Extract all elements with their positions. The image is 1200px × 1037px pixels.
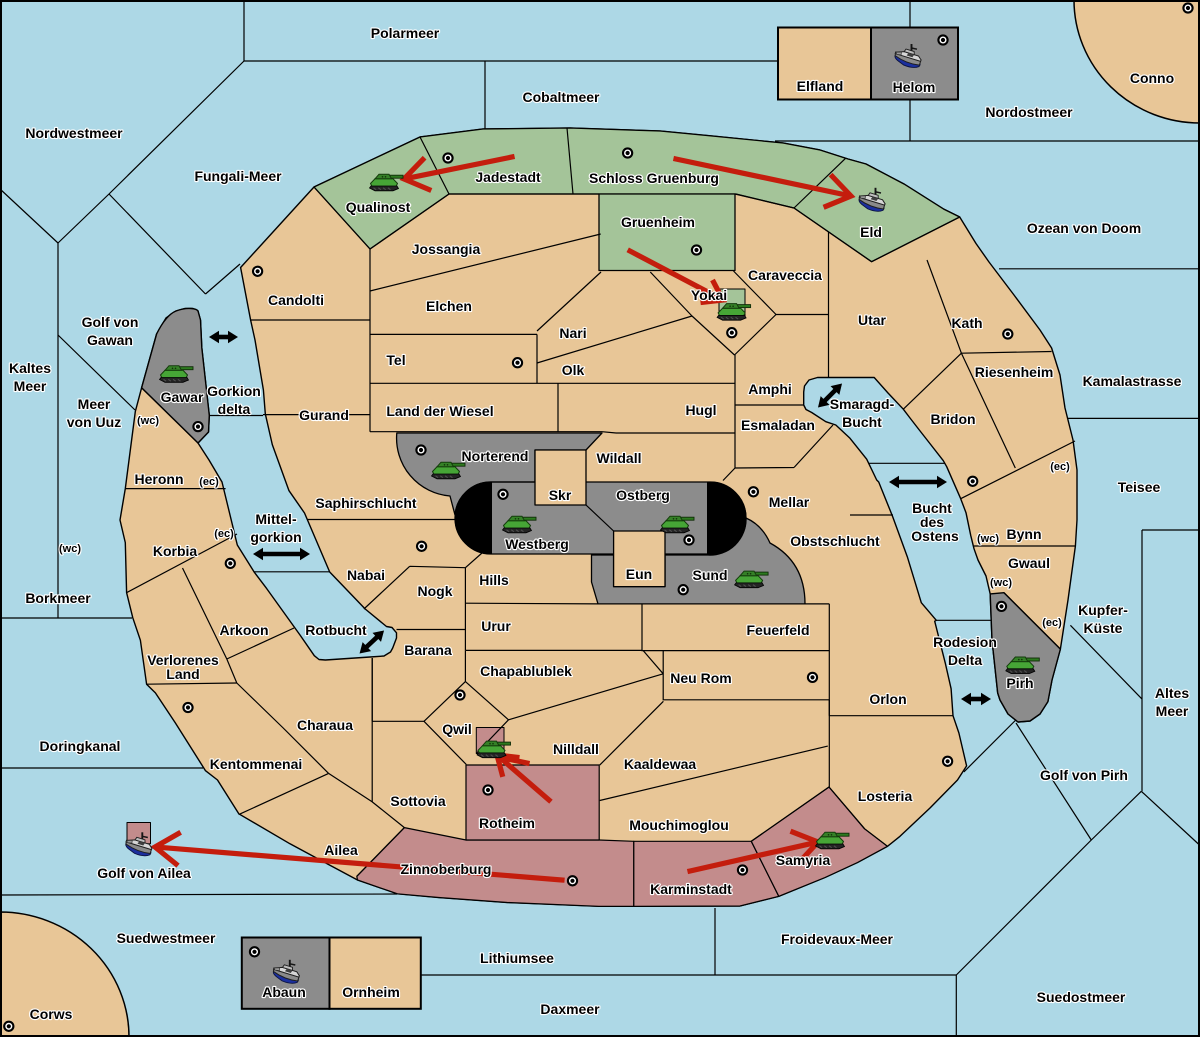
- svg-text:Neu Rom: Neu Rom: [670, 670, 731, 686]
- svg-text:Delta: Delta: [948, 652, 982, 668]
- svg-text:(wc): (wc): [137, 415, 159, 427]
- svg-text:(ec): (ec): [1050, 461, 1070, 473]
- svg-text:Land: Land: [166, 666, 199, 682]
- svg-text:Meer: Meer: [78, 396, 111, 412]
- svg-text:Mellar: Mellar: [769, 494, 810, 510]
- svg-text:Cobaltmeer: Cobaltmeer: [522, 89, 600, 105]
- svg-text:Arkoon: Arkoon: [220, 622, 269, 638]
- svg-text:Abaun: Abaun: [262, 984, 306, 1000]
- svg-text:Kaltes: Kaltes: [9, 360, 51, 376]
- svg-text:Wildall: Wildall: [597, 450, 642, 466]
- svg-text:Mittel-: Mittel-: [255, 511, 297, 527]
- svg-text:Kentommenai: Kentommenai: [210, 756, 303, 772]
- svg-text:Suedostmeer: Suedostmeer: [1037, 989, 1126, 1005]
- svg-text:Elfland: Elfland: [797, 78, 844, 94]
- svg-text:(ec): (ec): [1042, 617, 1062, 629]
- svg-text:Nordostmeer: Nordostmeer: [985, 104, 1073, 120]
- svg-text:Korbia: Korbia: [153, 543, 198, 559]
- svg-text:Golf von: Golf von: [82, 314, 139, 330]
- svg-text:Meer: Meer: [14, 378, 47, 394]
- svg-text:Sund: Sund: [693, 567, 728, 583]
- svg-text:Corws: Corws: [30, 1006, 73, 1022]
- svg-text:Tel: Tel: [386, 352, 405, 368]
- svg-text:Golf von Ailea: Golf von Ailea: [97, 865, 191, 881]
- svg-text:Orlon: Orlon: [869, 691, 906, 707]
- svg-text:Nilldall: Nilldall: [553, 741, 599, 757]
- svg-text:Bucht: Bucht: [842, 414, 882, 430]
- svg-text:Elchen: Elchen: [426, 298, 472, 314]
- svg-text:Meer: Meer: [1156, 703, 1189, 719]
- svg-text:Jadestadt: Jadestadt: [475, 169, 541, 185]
- svg-text:gorkion: gorkion: [250, 529, 301, 545]
- svg-text:Bridon: Bridon: [930, 411, 975, 427]
- svg-text:Esmaladan: Esmaladan: [741, 417, 815, 433]
- svg-text:(wc): (wc): [977, 533, 999, 545]
- svg-text:Samyria: Samyria: [776, 852, 831, 868]
- svg-text:Heronn: Heronn: [135, 471, 184, 487]
- svg-text:Utar: Utar: [858, 312, 887, 328]
- svg-text:Teisee: Teisee: [1118, 479, 1161, 495]
- svg-text:Schloss Gruenburg: Schloss Gruenburg: [589, 170, 719, 186]
- svg-text:Hills: Hills: [479, 572, 509, 588]
- svg-text:Nogk: Nogk: [418, 583, 453, 599]
- svg-text:Gorkion: Gorkion: [207, 383, 261, 399]
- svg-text:Ostens: Ostens: [911, 528, 959, 544]
- svg-text:(wc): (wc): [990, 577, 1012, 589]
- svg-text:Gurand: Gurand: [299, 407, 349, 423]
- svg-text:Suedwestmeer: Suedwestmeer: [117, 930, 216, 946]
- svg-text:Gwaul: Gwaul: [1008, 555, 1050, 571]
- svg-text:(wc): (wc): [59, 543, 81, 555]
- svg-text:Riesenheim: Riesenheim: [975, 364, 1054, 380]
- svg-text:Westberg: Westberg: [505, 536, 569, 552]
- svg-text:Bynn: Bynn: [1007, 526, 1042, 542]
- svg-text:Ailea: Ailea: [324, 842, 358, 858]
- svg-text:Losteria: Losteria: [858, 788, 913, 804]
- svg-text:Daxmeer: Daxmeer: [540, 1001, 600, 1017]
- svg-text:Nabai: Nabai: [347, 567, 385, 583]
- svg-text:Urur: Urur: [481, 618, 511, 634]
- svg-text:(ec): (ec): [199, 476, 219, 488]
- svg-text:delta: delta: [218, 401, 251, 417]
- svg-text:Polarmeer: Polarmeer: [371, 25, 440, 41]
- svg-text:Chapablublek: Chapablublek: [480, 663, 572, 679]
- svg-text:Helom: Helom: [893, 79, 936, 95]
- svg-text:Skr: Skr: [549, 487, 572, 503]
- svg-text:Eld: Eld: [860, 224, 882, 240]
- svg-text:Rotheim: Rotheim: [479, 815, 535, 831]
- svg-text:Smaragd-: Smaragd-: [830, 396, 895, 412]
- svg-text:Zinnoberburg: Zinnoberburg: [401, 861, 492, 877]
- svg-text:Ornheim: Ornheim: [342, 984, 400, 1000]
- svg-text:Qualinost: Qualinost: [346, 199, 411, 215]
- svg-text:Olk: Olk: [562, 362, 585, 378]
- svg-text:(ec): (ec): [214, 528, 234, 540]
- svg-text:Ostberg: Ostberg: [616, 487, 670, 503]
- svg-text:Feuerfeld: Feuerfeld: [746, 622, 809, 638]
- svg-text:Nordwestmeer: Nordwestmeer: [25, 125, 123, 141]
- svg-text:Sottovia: Sottovia: [390, 793, 445, 809]
- svg-text:Kath: Kath: [951, 315, 982, 331]
- svg-text:Pirh: Pirh: [1006, 675, 1033, 691]
- svg-text:Amphi: Amphi: [748, 381, 792, 397]
- svg-text:Rotbucht: Rotbucht: [305, 622, 367, 638]
- svg-text:Gawar: Gawar: [161, 389, 204, 405]
- svg-text:Küste: Küste: [1084, 620, 1123, 636]
- svg-text:Kaaldewaa: Kaaldewaa: [624, 756, 697, 772]
- svg-text:Nari: Nari: [559, 325, 586, 341]
- svg-text:Qwil: Qwil: [442, 721, 472, 737]
- svg-text:Lithiumsee: Lithiumsee: [480, 950, 554, 966]
- svg-text:Gawan: Gawan: [87, 332, 133, 348]
- svg-text:Land der Wiesel: Land der Wiesel: [386, 403, 493, 419]
- svg-text:Norterend: Norterend: [462, 448, 529, 464]
- svg-text:Obstschlucht: Obstschlucht: [790, 533, 880, 549]
- svg-text:Altes: Altes: [1155, 685, 1189, 701]
- svg-text:Borkmeer: Borkmeer: [25, 590, 91, 606]
- svg-text:Kupfer-: Kupfer-: [1078, 602, 1128, 618]
- svg-text:Golf von Pirh: Golf von Pirh: [1040, 767, 1128, 783]
- svg-text:Jossangia: Jossangia: [412, 241, 481, 257]
- svg-text:Karminstadt: Karminstadt: [650, 881, 732, 897]
- svg-text:Fungali-Meer: Fungali-Meer: [194, 168, 282, 184]
- svg-text:Rodesion: Rodesion: [933, 634, 997, 650]
- svg-text:Doringkanal: Doringkanal: [40, 738, 121, 754]
- svg-text:Charaua: Charaua: [297, 717, 353, 733]
- svg-text:Mouchimoglou: Mouchimoglou: [629, 817, 729, 833]
- svg-text:Hugl: Hugl: [685, 402, 716, 418]
- svg-text:von Uuz: von Uuz: [67, 414, 121, 430]
- svg-text:Caraveccia: Caraveccia: [748, 267, 822, 283]
- svg-text:Gruenheim: Gruenheim: [621, 214, 695, 230]
- svg-text:Yokai: Yokai: [691, 287, 727, 303]
- svg-text:Conno: Conno: [1130, 70, 1174, 86]
- svg-text:Eun: Eun: [626, 566, 652, 582]
- svg-text:Barana: Barana: [404, 642, 452, 658]
- svg-text:Candolti: Candolti: [268, 292, 324, 308]
- svg-text:Froidevaux-Meer: Froidevaux-Meer: [781, 931, 894, 947]
- svg-text:Kamalastrasse: Kamalastrasse: [1083, 373, 1182, 389]
- svg-text:Ozean von Doom: Ozean von Doom: [1027, 220, 1141, 236]
- svg-text:Saphirschlucht: Saphirschlucht: [315, 495, 416, 511]
